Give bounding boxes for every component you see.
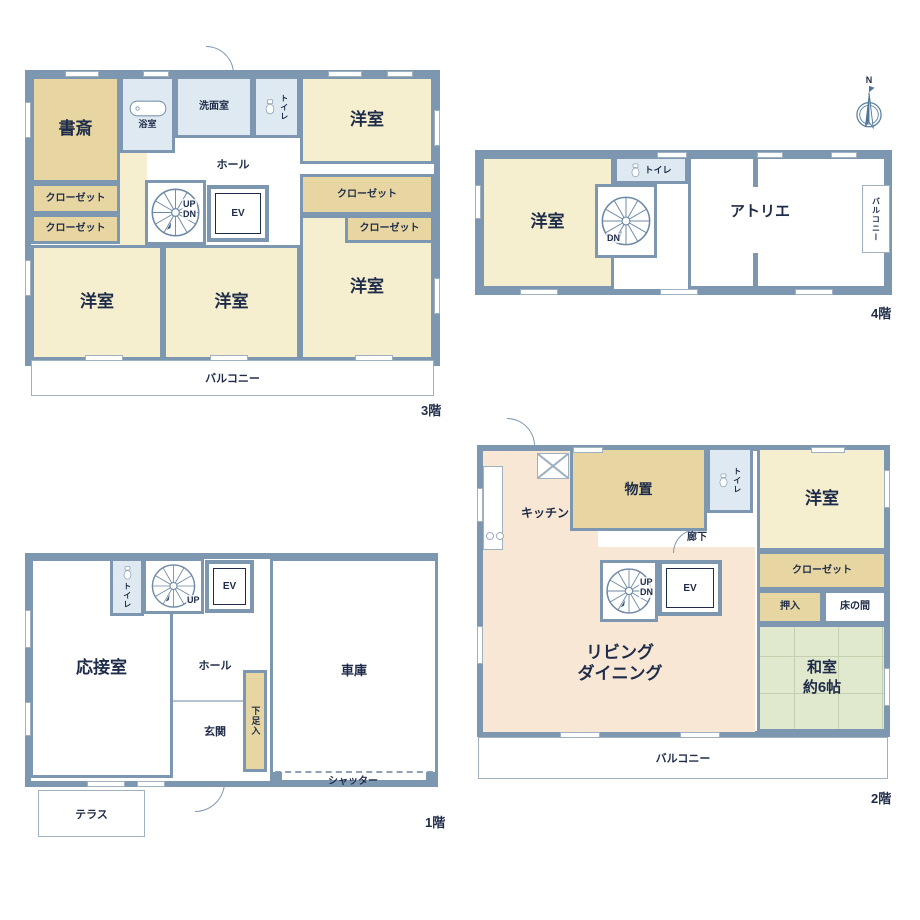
window-mark — [573, 447, 603, 453]
room-bedroom-ne: 洋室 — [300, 76, 434, 164]
floor-tag-2f: 2階 — [871, 788, 891, 807]
window-mark — [560, 732, 600, 738]
stair-direction: UP DN — [639, 577, 654, 598]
room-label: トイレ — [644, 165, 671, 176]
window-mark — [143, 71, 169, 77]
window-mark — [434, 110, 440, 146]
room-label: クローゼット — [46, 193, 106, 205]
stair-direction: UP DN — [182, 199, 197, 220]
floor-plan-4f: N 洋室 トイレ DN アトリエ バルコニー 4階 — [475, 75, 915, 325]
room-toilet-4f: トイレ — [614, 156, 688, 184]
north-label: N — [866, 75, 873, 85]
room-bedroom-2f: 洋室 — [757, 447, 887, 551]
wall-segment — [753, 159, 758, 187]
room-storage: 物置 — [570, 447, 707, 531]
window-mark — [210, 355, 248, 361]
room-label: 洋室 — [215, 292, 249, 312]
toilet-icon — [718, 473, 729, 488]
room-label: 押入 — [780, 601, 800, 613]
living-label-line2: ダイニング — [578, 664, 663, 683]
spiral-stair-1f: UP — [143, 558, 204, 614]
toilet-icon — [264, 99, 276, 115]
shutter-label: シャッター — [308, 776, 398, 789]
closet-left-1: クローゼット — [31, 183, 120, 214]
room-label: クローゼット — [360, 223, 420, 235]
room-atelier — [688, 156, 887, 289]
bathtub-icon — [126, 100, 170, 117]
room-garage: 車庫 — [270, 558, 438, 783]
window-mark — [660, 289, 698, 295]
corridor-fill — [120, 153, 147, 245]
window-mark — [475, 185, 481, 219]
floorplan-page: { "palette":{"wall":"#7e97b1","ink":"#1f… — [0, 0, 920, 920]
window-mark — [657, 152, 687, 158]
elevator-label: EV — [666, 568, 714, 608]
dn-label: DN — [640, 587, 653, 597]
room-label: トイレ — [122, 582, 132, 609]
window-mark — [477, 488, 483, 522]
compass-icon — [852, 85, 886, 137]
window-mark — [884, 668, 890, 706]
dn-label: DN — [607, 233, 620, 243]
door-arc — [195, 782, 225, 812]
window-mark — [328, 71, 362, 77]
floor-tag-1f: 1階 — [425, 812, 445, 831]
balcony-label: バルコニー — [205, 370, 260, 386]
window-mark — [355, 355, 393, 361]
balcony-3f: バルコニー — [31, 360, 434, 396]
room-bedroom-s: 洋室 — [163, 245, 300, 360]
closet-right-2: クローゼット — [345, 215, 434, 243]
window-mark — [25, 702, 31, 736]
window-mark — [884, 470, 890, 508]
hall-label: ホール — [195, 159, 271, 173]
door-arc — [507, 418, 535, 446]
corridor-label: 廊下 — [667, 532, 727, 545]
elevator-label: EV — [213, 568, 246, 605]
wall-segment — [753, 253, 758, 289]
elevator-label: EV — [215, 193, 261, 234]
closet-left-2: クローゼット — [31, 214, 120, 244]
room-label: トイレ — [279, 94, 289, 121]
closet-2f: クローゼット — [757, 551, 887, 590]
window-mark — [757, 152, 783, 158]
room-toilet-2f: トイレ — [707, 447, 753, 513]
atelier-label: アトリエ — [710, 203, 810, 222]
hatch-icon — [537, 453, 569, 479]
room-toilet-1f: トイレ — [110, 558, 144, 616]
room-label: 浴室 — [138, 119, 156, 130]
elevator-2f: EV — [658, 560, 722, 616]
shutter-line — [275, 771, 433, 773]
balcony-label: バルコニー — [656, 750, 711, 766]
room-label: クローゼット — [337, 189, 397, 201]
balcony-label: バルコニー — [871, 197, 882, 242]
room-label-line1: 和室 — [807, 659, 837, 677]
room-toilet-3f: トイレ — [253, 76, 300, 138]
dn-label: DN — [183, 209, 196, 219]
room-label: 洗面室 — [199, 101, 229, 113]
spiral-stair-4f: DN — [595, 184, 657, 258]
window-mark — [137, 781, 165, 787]
elevator-1f: EV — [205, 560, 254, 613]
room-label: 洋室 — [805, 489, 839, 509]
room-washitsu: 和室 約6帖 — [757, 624, 887, 732]
window-mark — [25, 260, 31, 296]
room-washroom: 洗面室 — [175, 76, 253, 138]
room-label: 応接室 — [76, 658, 127, 678]
wall-segment — [270, 772, 282, 783]
up-label: UP — [183, 199, 196, 209]
window-mark — [25, 610, 31, 648]
spiral-stair-3f: UP DN — [145, 180, 206, 245]
partition-line — [173, 700, 245, 702]
room-label: 洋室 — [531, 212, 565, 232]
room-label: 洋室 — [80, 292, 114, 312]
room-label: 洋室 — [350, 277, 384, 297]
window-mark — [85, 355, 123, 361]
floor-plan-3f: 書斎 浴室 洗面室 トイレ 洋室 クローゼット クローゼット UP DN EV … — [25, 62, 445, 418]
room-label: 下足入 — [250, 706, 261, 736]
room-label: 書斎 — [59, 119, 93, 139]
room-label: クローゼット — [46, 223, 106, 235]
room-label: クローゼット — [792, 565, 852, 577]
entrance-label: 玄関 — [180, 726, 250, 740]
closet-right-1: クローゼット — [300, 174, 434, 215]
room-label: 床の間 — [840, 601, 870, 613]
floor-tag-4f: 4階 — [871, 303, 891, 322]
door-arc — [206, 46, 234, 74]
room-label: 洋室 — [350, 110, 384, 130]
window-mark — [65, 71, 99, 77]
stair-direction: UP — [186, 595, 201, 605]
floor-plan-1f: 応接室 トイレ UP EV 車庫 ホール 玄関 下足入 シャッター テラス 1階 — [25, 550, 465, 855]
room-label: トイレ — [732, 467, 742, 494]
living-label-line1: リビング — [586, 643, 654, 662]
window-mark — [434, 278, 440, 314]
spiral-stair-2f: UP DN — [600, 560, 658, 622]
terrace: テラス — [38, 790, 145, 837]
up-label: UP — [187, 595, 200, 605]
terrace-label: テラス — [75, 806, 108, 822]
toilet-icon — [122, 566, 133, 580]
stove-icon — [486, 532, 504, 540]
window-mark — [680, 732, 720, 738]
compass: N — [851, 75, 887, 137]
balcony-4f: バルコニー — [862, 185, 890, 253]
window-mark — [477, 626, 483, 664]
window-mark — [387, 71, 413, 77]
hall-label: ホール — [180, 660, 250, 674]
window-mark — [795, 289, 833, 295]
room-oshiire: 押入 — [757, 590, 823, 624]
room-bedroom-sw: 洋室 — [31, 245, 163, 360]
shoe-cabinet: 下足入 — [243, 670, 267, 772]
elevator-3f: EV — [207, 185, 269, 242]
stair-direction: DN — [606, 233, 621, 243]
floor-plan-2f: キッチン 物置 トイレ 洋室 クローゼット 押入 床の間 和室 約6帖 UP D… — [475, 430, 915, 805]
floor-tag-3f: 3階 — [421, 400, 441, 419]
window-mark — [25, 102, 31, 138]
room-label: 物置 — [625, 481, 653, 498]
room-label-line2: 約6帖 — [803, 679, 841, 697]
room-tokonoma: 床の間 — [823, 590, 887, 624]
window-mark — [520, 289, 558, 295]
spiral-stair-icon — [598, 187, 654, 255]
balcony-2f: バルコニー — [478, 737, 888, 779]
room-label: 車庫 — [341, 663, 367, 679]
window-mark — [811, 447, 845, 453]
window-mark — [87, 781, 125, 787]
toilet-icon — [630, 163, 641, 178]
up-label: UP — [640, 577, 653, 587]
window-mark — [831, 152, 857, 158]
room-bathroom: 浴室 — [120, 76, 175, 153]
wall-segment — [426, 772, 438, 783]
living-dining-label: リビング ダイニング — [535, 642, 705, 685]
room-study: 書斎 — [31, 76, 120, 183]
